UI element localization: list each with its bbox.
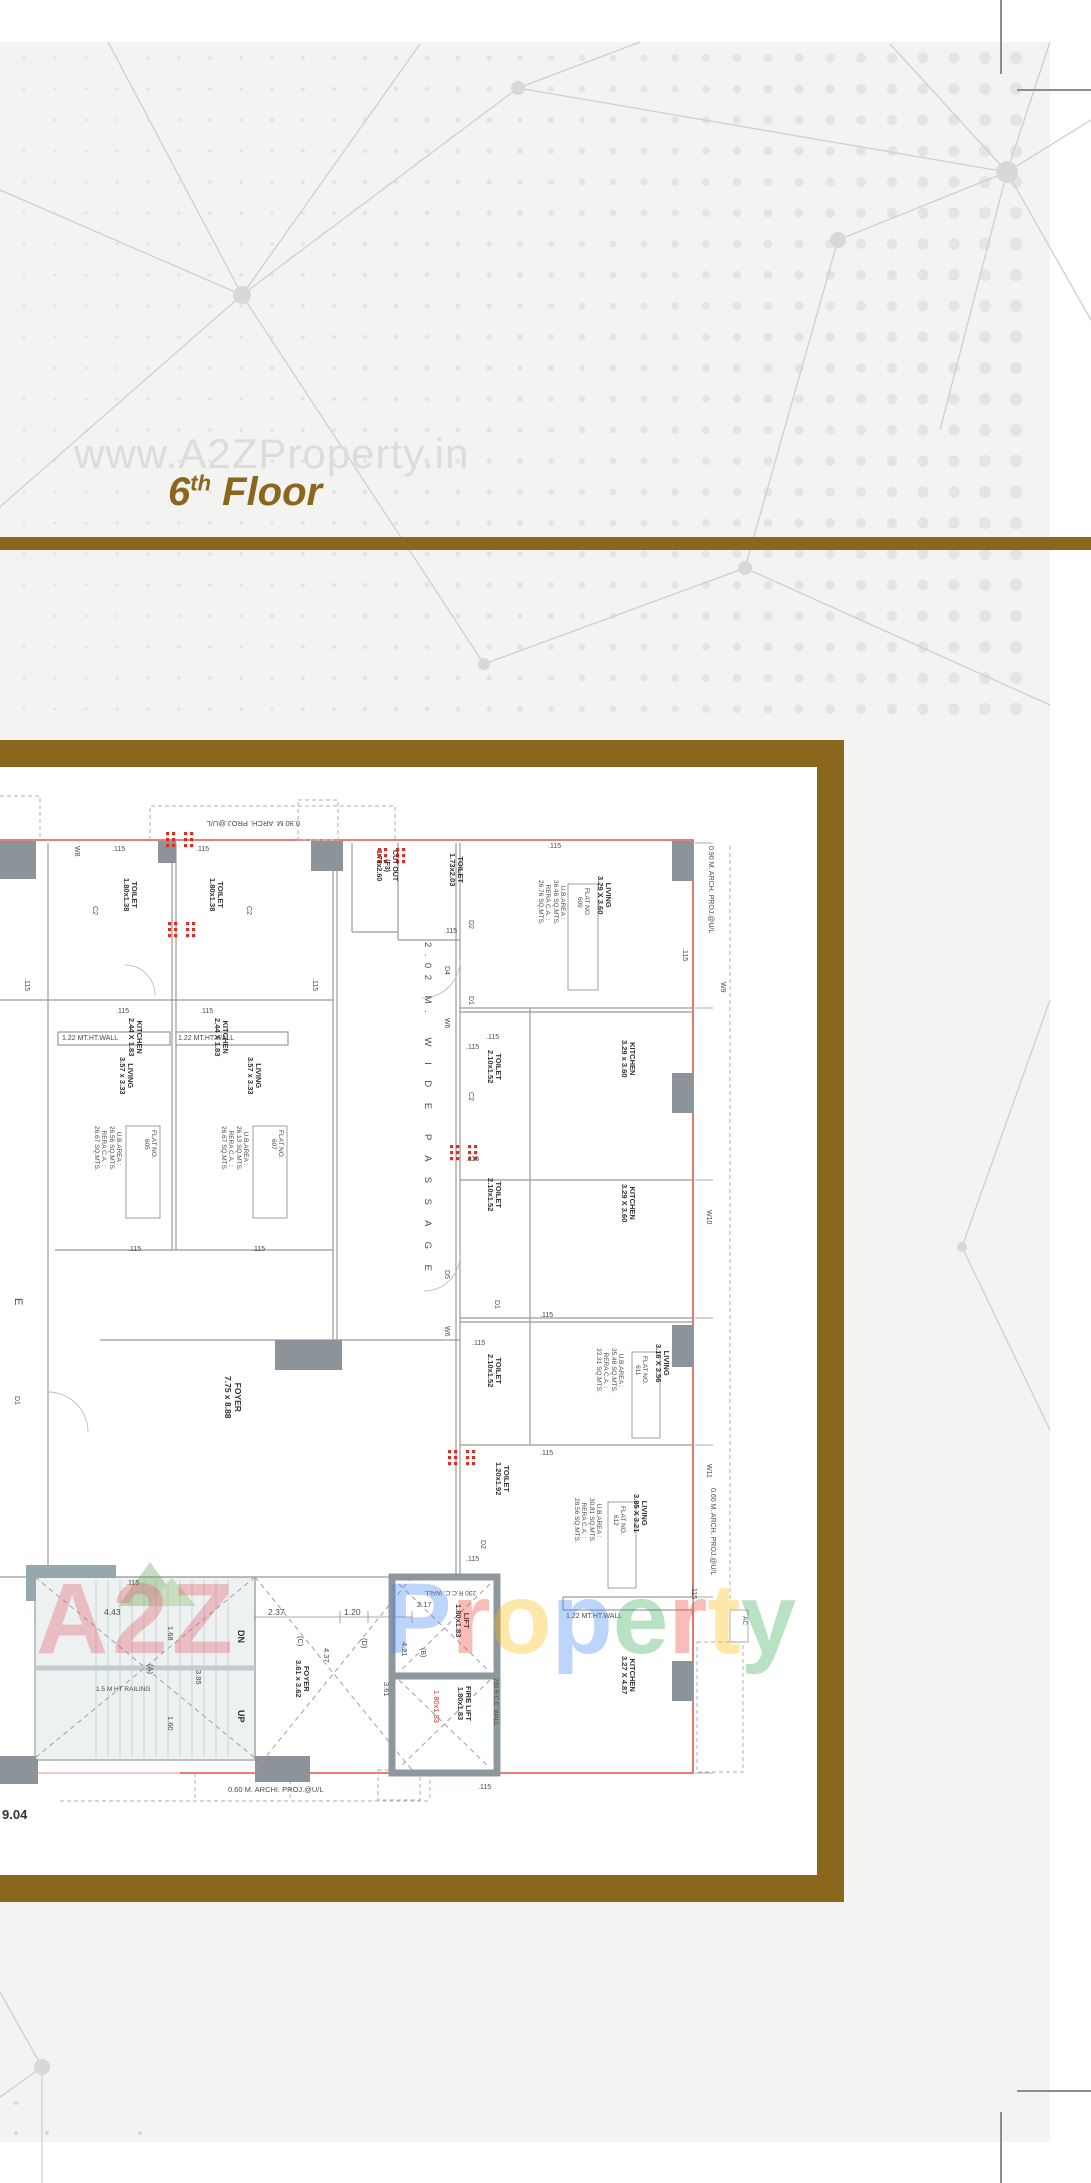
corner-rule-lines bbox=[1001, 0, 1091, 2183]
decor-and-plan-canvas bbox=[0, 0, 1091, 2183]
floor-word: Floor bbox=[211, 470, 322, 514]
floor-number: 6 bbox=[168, 470, 190, 514]
sparse-bottom-dots bbox=[14, 2101, 142, 2135]
page: { "header": { "watermark": "www.A2ZPrope… bbox=[0, 0, 1091, 2183]
gold-divider-bar bbox=[0, 537, 1091, 550]
dot-grid-pattern bbox=[22, 52, 1022, 715]
page-title: 6th Floor bbox=[168, 470, 322, 515]
floor-ordinal-suffix: th bbox=[190, 471, 211, 496]
